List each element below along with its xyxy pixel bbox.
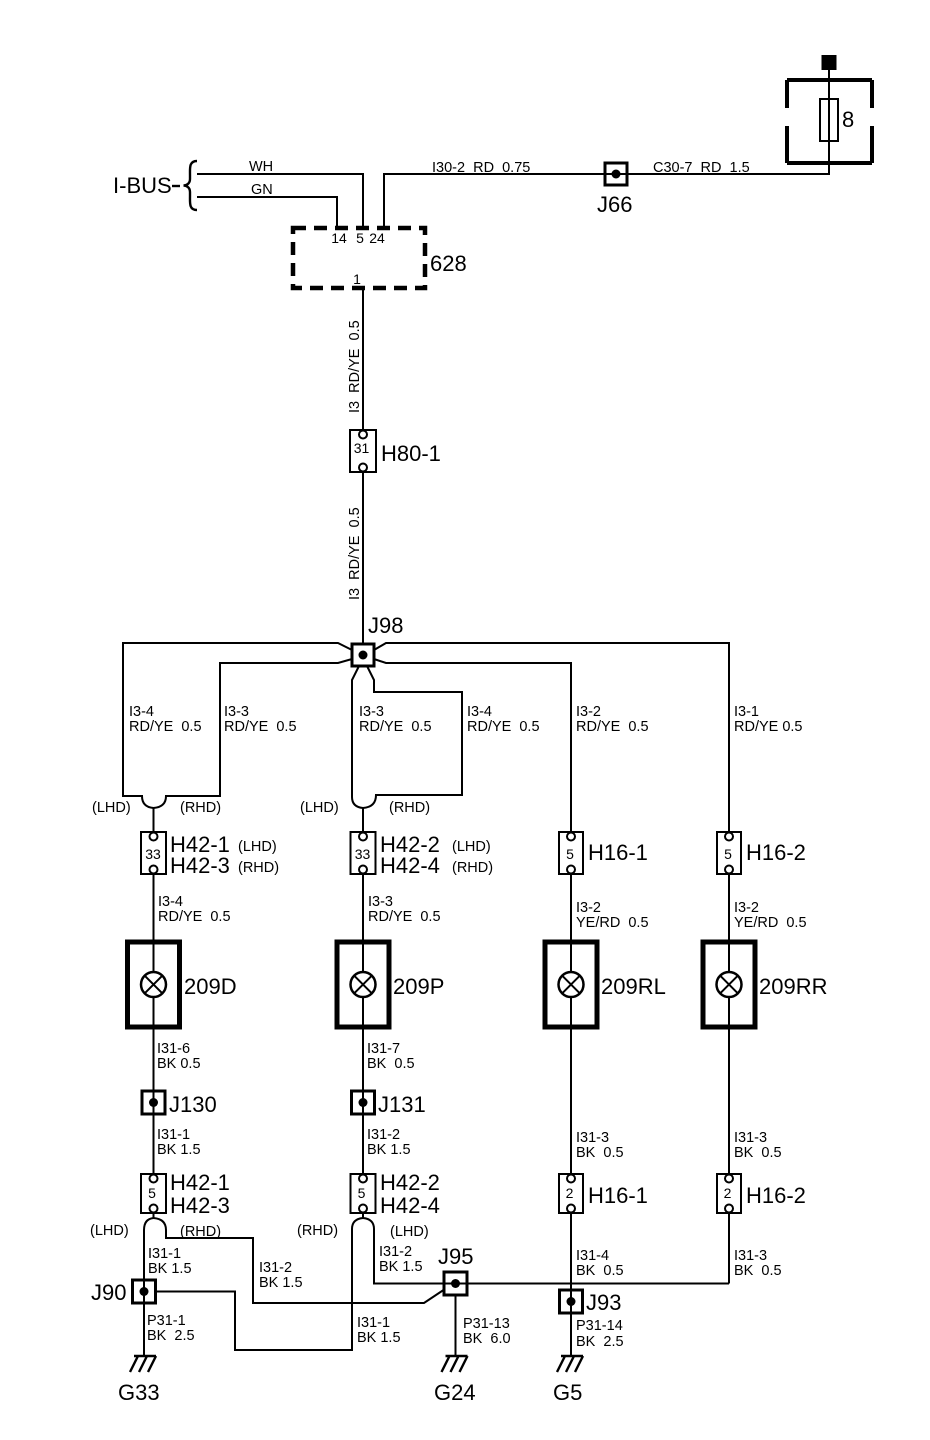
wire-label-gauge: BK 6.0 — [463, 1331, 511, 1347]
branch-label-gauge: RD/YE 0.5 — [576, 719, 649, 735]
wire-label-gauge: BK 0.5 — [157, 1056, 201, 1072]
connector-label: H16-2 — [746, 840, 806, 865]
branch-label-id: I3-1 — [734, 704, 759, 720]
tag-rhd: (RHD) — [452, 860, 493, 876]
branch-label-id: I3-3 — [224, 704, 249, 720]
pin-circle — [725, 1175, 733, 1183]
wire-label-id: I31-1 — [148, 1246, 181, 1262]
wire-label-gauge: BK 2.5 — [147, 1328, 195, 1344]
wire-label-gauge: YE/RD 0.5 — [734, 915, 807, 931]
wire-label-i3-lower: I3 RD/YE 0.5 — [347, 507, 363, 600]
junction-j90-label: J90 — [91, 1280, 126, 1305]
tag-rhd: (RHD) — [297, 1223, 338, 1239]
wire-label-gauge: RD/YE 0.5 — [368, 909, 441, 925]
pin-circle — [567, 866, 575, 874]
pin-number: 2 — [566, 1185, 574, 1201]
module-628-pin-5: 5 — [356, 230, 364, 246]
connector-h80-1-pin-number: 31 — [354, 440, 370, 456]
junction-j130-dot — [149, 1098, 158, 1107]
connector-label: H42-2 — [380, 1170, 440, 1195]
pin-number: 33 — [355, 846, 371, 862]
wire-label-gauge: BK 0.5 — [576, 1263, 624, 1279]
tag-rhd: (RHD) — [389, 800, 430, 816]
connector-h80-1-label: H80-1 — [381, 441, 441, 466]
tag-lhd: (LHD) — [452, 839, 491, 855]
branch-label-id: I3-4 — [129, 704, 154, 720]
wire-label-id: I3-3 — [368, 894, 393, 910]
tag-lhd: (LHD) — [238, 839, 277, 855]
junction-j130-label: J130 — [169, 1092, 217, 1117]
wire-label-gauge: BK 1.5 — [157, 1142, 201, 1158]
pin-circle — [150, 833, 158, 841]
junction-j66-dot — [612, 170, 621, 179]
junction-j93-dot — [567, 1297, 576, 1306]
module-628-label: 628 — [430, 251, 467, 276]
connector-label: H42-3 — [170, 1193, 230, 1218]
branch-label-gauge: RD/YE 0.5 — [224, 719, 297, 735]
connector-label: H16-2 — [746, 1183, 806, 1208]
wire-label-id: I31-2 — [379, 1244, 412, 1260]
wire-label-gauge: BK 1.5 — [357, 1330, 401, 1346]
wire-label-id: I31-7 — [367, 1041, 400, 1057]
ibus-brace — [184, 161, 198, 210]
junction-j90-dot — [140, 1287, 149, 1296]
pin-number: 5 — [148, 1185, 156, 1201]
tag-lhd: (LHD) — [300, 800, 339, 816]
ibus-label: I-BUS — [113, 173, 172, 198]
wire-label-id: I3-2 — [576, 900, 601, 916]
wire-label-i30-2: I30-2 RD 0.75 — [432, 160, 530, 176]
junction-j98-label: J98 — [368, 613, 403, 638]
junction-j93-label: J93 — [586, 1290, 621, 1315]
junction-j131-label: J131 — [378, 1092, 426, 1117]
wire-label-gauge: YE/RD 0.5 — [576, 915, 649, 931]
tag-lhd: (LHD) — [90, 1223, 129, 1239]
connector-label: H16-1 — [588, 1183, 648, 1208]
junction-j98-dot — [359, 651, 368, 660]
junction-j131-dot — [359, 1098, 368, 1107]
lamp-label-209p: 209P — [393, 974, 444, 999]
ground-symbol-g5 — [557, 1356, 583, 1372]
wire-label-i3-upper: I3 RD/YE 0.5 — [347, 320, 363, 413]
wire-label-id: I31-1 — [157, 1127, 190, 1143]
ground-symbol-g33 — [130, 1356, 156, 1372]
pin-number: 2 — [724, 1185, 732, 1201]
wire-label-gauge: BK 2.5 — [576, 1334, 624, 1350]
wire-label-c30-7: C30-7 RD 1.5 — [653, 160, 750, 176]
tag-rhd: (RHD) — [180, 1224, 221, 1240]
lamp-label-209rl: 209RL — [601, 974, 666, 999]
ground-g33-label: G33 — [118, 1380, 160, 1405]
wire-ibus-gn — [197, 197, 337, 228]
wire-label-id: I3-2 — [734, 900, 759, 916]
pin-number: 5 — [358, 1185, 366, 1201]
connector-label: H42-4 — [380, 853, 440, 878]
plus30-terminal — [822, 55, 837, 70]
connector-h80-1-pin-top — [359, 431, 367, 439]
pin-circle — [150, 1205, 158, 1213]
connector-label: H16-1 — [588, 840, 648, 865]
wire-label-id: I31-3 — [576, 1130, 609, 1146]
wire-label-gauge: BK 1.5 — [259, 1275, 303, 1291]
wire-label-gauge: BK 0.5 — [734, 1263, 782, 1279]
pin-circle — [150, 1175, 158, 1183]
tag-lhd: (LHD) — [92, 800, 131, 816]
wire-label-id: I31-3 — [734, 1130, 767, 1146]
wire-label-id: I31-4 — [576, 1248, 609, 1264]
ground-g5-label: G5 — [553, 1380, 582, 1405]
wire-j98-bottom-lhd — [352, 666, 363, 808]
branch-label-id: I3-3 — [359, 704, 384, 720]
wire-j98-bottom-rhd — [363, 666, 462, 808]
branch-label-id: I3-2 — [576, 704, 601, 720]
ground-symbol-g24 — [442, 1356, 468, 1372]
wire-label-id: I31-1 — [357, 1315, 390, 1331]
pin-circle — [567, 1175, 575, 1183]
pin-number: 33 — [145, 846, 161, 862]
wire-label-gauge: BK 0.5 — [576, 1145, 624, 1161]
pin-circle — [359, 833, 367, 841]
pin-circle — [567, 1205, 575, 1213]
ground-g24-label: G24 — [434, 1380, 476, 1405]
lamp-label-209d: 209D — [184, 974, 237, 999]
connector-h80-1-pin-bottom — [359, 464, 367, 472]
wire-label-id: I3-4 — [158, 894, 183, 910]
module-628-pin-1: 1 — [353, 271, 361, 287]
module-628-pin-14: 14 — [331, 230, 347, 246]
wire-label-gn: GN — [251, 182, 273, 198]
pin-circle — [359, 1205, 367, 1213]
branch-label-id: I3-4 — [467, 704, 492, 720]
wire-label-gauge: BK 1.5 — [367, 1142, 411, 1158]
wire-label-id: I31-3 — [734, 1248, 767, 1264]
wire-label-id: I31-2 — [259, 1260, 292, 1276]
pin-circle — [150, 866, 158, 874]
wire-label-gauge: BK 0.5 — [367, 1056, 415, 1072]
pin-circle — [725, 833, 733, 841]
junction-j95-label: J95 — [438, 1244, 473, 1269]
tag-rhd: (RHD) — [180, 800, 221, 816]
lamp-label-209rr: 209RR — [759, 974, 827, 999]
branch-label-gauge: RD/YE 0.5 — [734, 719, 803, 735]
pin-circle — [359, 866, 367, 874]
pin-circle — [359, 1175, 367, 1183]
wire-label-gauge: BK 1.5 — [379, 1259, 423, 1275]
wiring-diagram-canvas: 8 I30-2 RD 0.75 C30-7 RD 1.5 J66 I-BUS W… — [0, 0, 930, 1440]
pin-circle — [567, 833, 575, 841]
connector-label: H42-4 — [380, 1193, 440, 1218]
wire-label-gauge: BK 0.5 — [734, 1145, 782, 1161]
pin-number: 5 — [724, 846, 732, 862]
pin-circle — [725, 1205, 733, 1213]
tag-rhd: (RHD) — [238, 860, 279, 876]
wire-label-gauge: RD/YE 0.5 — [158, 909, 231, 925]
connector-label: H42-1 — [170, 1170, 230, 1195]
wire-ibus-wh — [197, 174, 363, 228]
wire-label-id: I31-2 — [367, 1127, 400, 1143]
wiring-diagram-page: 8 I30-2 RD 0.75 C30-7 RD 1.5 J66 I-BUS W… — [0, 0, 930, 1440]
wire-label-gauge: BK 1.5 — [148, 1261, 192, 1277]
pin-number: 5 — [566, 846, 574, 862]
pin-circle — [725, 866, 733, 874]
junction-j95-dot — [451, 1279, 460, 1288]
wire-label-id: P31-13 — [463, 1316, 510, 1332]
branch-label-gauge: RD/YE 0.5 — [129, 719, 202, 735]
wire-label-id: P31-1 — [147, 1313, 186, 1329]
branch-label-gauge: RD/YE 0.5 — [467, 719, 540, 735]
junction-j66-label: J66 — [597, 192, 632, 217]
connector-label: H42-3 — [170, 853, 230, 878]
wire-label-id: P31-14 — [576, 1318, 623, 1334]
wire-label-id: I31-6 — [157, 1041, 190, 1057]
junction-j98 — [352, 644, 374, 666]
wire-label-wh: WH — [249, 159, 273, 175]
fuse-number: 8 — [842, 107, 854, 132]
tag-lhd: (LHD) — [390, 1224, 429, 1240]
branch-label-gauge: RD/YE 0.5 — [359, 719, 432, 735]
module-628-pin-24: 24 — [369, 230, 385, 246]
